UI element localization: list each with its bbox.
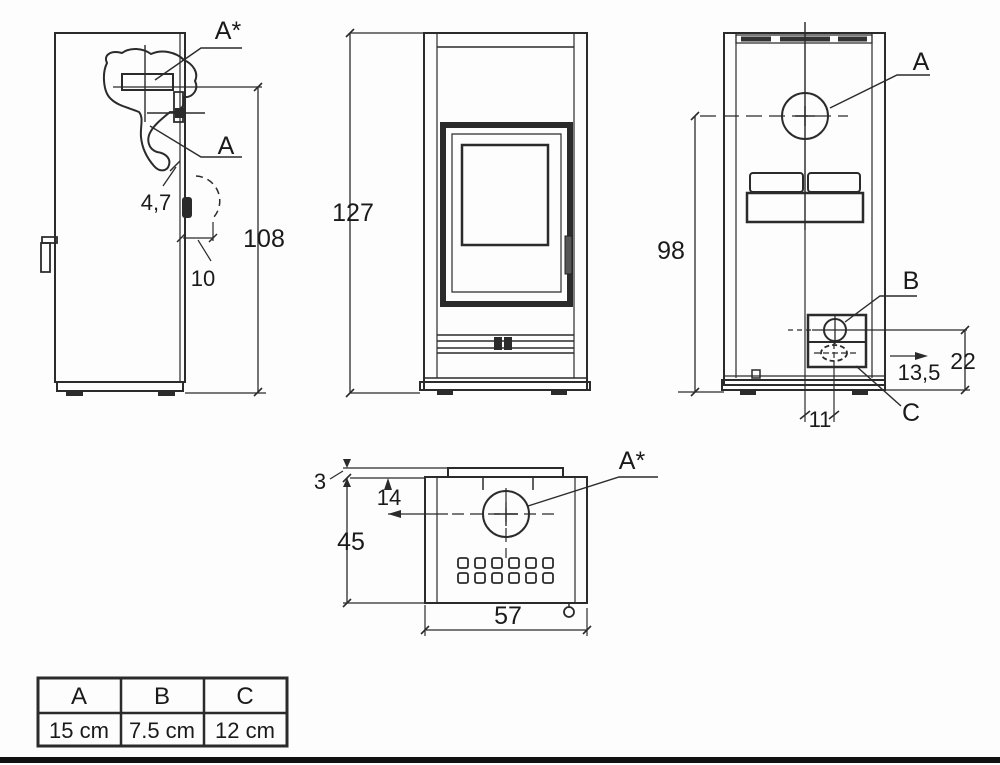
lower-flue-stub — [182, 197, 192, 218]
front-view: 127 — [332, 29, 590, 397]
grille-hole — [526, 558, 536, 568]
table-value-b: 7.5 cm — [129, 718, 195, 743]
dim-127: 127 — [332, 29, 424, 397]
table-header-b: B — [154, 683, 170, 710]
grille-hole — [509, 573, 519, 583]
pedestal-latch-right — [504, 337, 512, 350]
callout-a-star-side: A* — [155, 17, 242, 80]
dim-45-label: 45 — [337, 528, 365, 556]
grille-hole — [543, 558, 553, 568]
back-foot-left — [740, 390, 756, 395]
back-foot-right — [852, 390, 868, 395]
label-a: A — [913, 48, 930, 76]
dim-13-5-label: 13,5 — [898, 360, 941, 385]
side-foot-right — [158, 391, 175, 396]
side-base-plate — [57, 382, 183, 391]
door-inner-line — [452, 134, 561, 292]
front-foot-right — [551, 390, 567, 395]
swivel-arc-dashed — [196, 176, 220, 220]
side-foot-left — [66, 391, 83, 396]
bottom-bar — [0, 757, 1000, 763]
dim-11: 11 — [800, 407, 839, 432]
back-vent-slot-right — [808, 173, 860, 192]
label-a-star: A* — [619, 447, 646, 475]
dim-127-label: 127 — [332, 199, 374, 227]
arrowhead-left — [388, 510, 401, 518]
dim-13-5: 13,5 — [890, 352, 940, 385]
table-header-a: A — [71, 683, 87, 710]
grille-hole — [475, 558, 485, 568]
label-b: B — [903, 267, 920, 295]
side-view: 4,7 10 108 A* A — [41, 17, 285, 396]
callout-b: B — [845, 267, 919, 322]
label-a-star: A* — [215, 17, 242, 45]
front-body-outline — [424, 33, 587, 390]
table-header-c: C — [236, 683, 253, 710]
callout-a-back: A — [830, 48, 930, 108]
dim-98: 98 — [657, 112, 724, 396]
leader-line — [528, 477, 658, 506]
dim-10: 10 — [177, 222, 217, 291]
rear-flue-center-marker — [175, 108, 185, 118]
dim-10-label: 10 — [191, 266, 215, 291]
door-handle-bar — [41, 243, 50, 272]
dim-108: 108 — [113, 83, 285, 396]
dim-22-label: 22 — [950, 348, 976, 374]
dim-3-label: 3 — [314, 469, 326, 494]
grille-hole — [526, 573, 536, 583]
grille-hole — [543, 573, 553, 583]
grille-hole — [458, 558, 468, 568]
dim-108-label: 108 — [243, 225, 285, 253]
leader-line — [330, 471, 343, 479]
dim-57: 57 — [421, 602, 591, 636]
leader-line — [198, 240, 211, 261]
leader-line — [845, 296, 917, 322]
back-view: 98 22 13,5 11 A B — [657, 22, 976, 432]
top-grille — [458, 558, 553, 583]
dim-4-7: 4,7 — [141, 167, 176, 215]
table-value-a: 15 cm — [49, 718, 109, 743]
label-c: C — [902, 399, 920, 427]
front-door-handle — [565, 236, 572, 274]
label-a: A — [218, 132, 235, 160]
pedestal-latch-left — [494, 337, 502, 350]
grille-hole — [509, 558, 519, 568]
stove-dimension-drawing: 4,7 10 108 A* A — [0, 0, 1000, 765]
front-base-plate — [420, 382, 590, 390]
table-value-c: 12 cm — [215, 718, 275, 743]
door-glass — [462, 145, 548, 245]
handle-knob-top — [564, 607, 574, 617]
grille-hole — [492, 573, 502, 583]
back-vent-slot-left — [750, 173, 803, 192]
grille-hole — [458, 573, 468, 583]
top-plate-lip — [448, 468, 563, 477]
back-small-detail — [752, 370, 760, 378]
arrowhead-right — [915, 352, 928, 360]
dim-98-label: 98 — [657, 237, 685, 265]
dim-14-label: 14 — [377, 485, 401, 510]
dimension-table: A B C 15 cm 7.5 cm 12 cm — [38, 678, 287, 746]
arrowhead-down — [343, 459, 351, 468]
grille-hole — [475, 573, 485, 583]
dim-11-label: 11 — [809, 407, 832, 432]
top-view: 3 14 45 57 A* — [314, 447, 658, 636]
dim-57-label: 57 — [494, 602, 522, 630]
front-foot-left — [437, 390, 453, 395]
technical-drawing-canvas: 4,7 10 108 A* A — [0, 0, 1000, 765]
dim-4-7-label: 4,7 — [141, 190, 172, 215]
leader-line — [830, 75, 930, 108]
grille-hole — [492, 558, 502, 568]
